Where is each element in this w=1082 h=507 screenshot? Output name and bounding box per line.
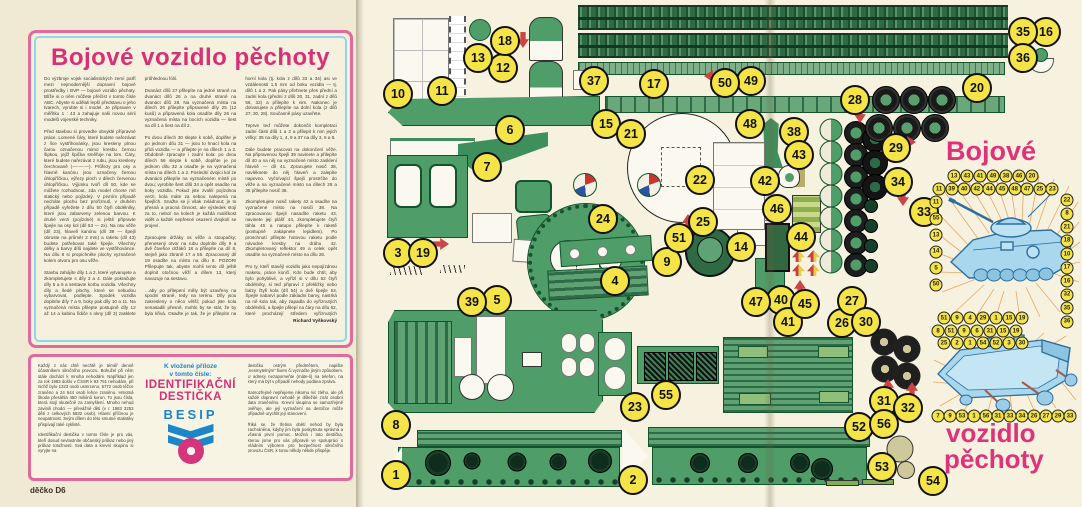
callout-number-35: 35 bbox=[1061, 302, 1074, 315]
callout-number-23: 23 bbox=[1046, 183, 1059, 196]
deck-mark bbox=[522, 352, 542, 367]
road-wheel-part bbox=[820, 207, 843, 230]
chevron-arrow-part bbox=[792, 264, 805, 276]
part-number-50: 50 bbox=[710, 68, 740, 98]
road-wheel-part bbox=[820, 185, 843, 208]
part-number-36: 36 bbox=[1008, 43, 1038, 73]
part-number-10: 10 bbox=[383, 79, 413, 109]
callout-number-2: 2 bbox=[951, 337, 964, 350]
dome-sight-lens bbox=[785, 173, 794, 182]
part-number-7: 7 bbox=[472, 152, 502, 182]
grille-panel-part bbox=[637, 346, 719, 384]
part-number-2: 2 bbox=[618, 465, 648, 495]
part-number-42: 42 bbox=[750, 166, 780, 196]
callout-number-32: 32 bbox=[1061, 288, 1074, 301]
chevron-arrow-part bbox=[807, 250, 820, 262]
road-wheel-part bbox=[921, 114, 949, 142]
part-number-56: 56 bbox=[869, 409, 899, 439]
callout-number-38: 38 bbox=[1000, 170, 1013, 183]
callout-number-5: 5 bbox=[930, 262, 943, 275]
callout-number-42: 42 bbox=[970, 183, 983, 196]
road-wheel-part bbox=[894, 336, 921, 363]
deck-ribs bbox=[394, 321, 452, 404]
part-number-11: 11 bbox=[427, 76, 457, 106]
hatch-template-part bbox=[472, 213, 512, 243]
hull-side-rib-part bbox=[417, 430, 622, 447]
callout-number-20: 20 bbox=[1026, 170, 1039, 183]
deck-oval bbox=[561, 357, 577, 377]
painted-wheel-part bbox=[573, 173, 597, 197]
part-number-14: 14 bbox=[726, 232, 756, 262]
turret-base-inner bbox=[697, 237, 723, 263]
deck-white-box bbox=[454, 337, 472, 377]
part-number-47: 47 bbox=[741, 287, 771, 317]
callout-number-3: 3 bbox=[1003, 337, 1016, 350]
part-number-55: 55 bbox=[651, 380, 681, 410]
road-wheel-part bbox=[690, 453, 710, 473]
part-number-49: 49 bbox=[736, 66, 766, 96]
part-number-21: 21 bbox=[616, 119, 646, 149]
road-wheel-part bbox=[900, 86, 928, 114]
road-wheel-part bbox=[790, 453, 810, 473]
bar-hole bbox=[569, 248, 581, 260]
callout-number-52: 52 bbox=[990, 337, 1003, 350]
part-number-24: 24 bbox=[588, 204, 618, 234]
deck-tab bbox=[819, 391, 849, 403]
callout-number-41: 41 bbox=[974, 170, 987, 183]
callout-number-46: 46 bbox=[1013, 170, 1026, 183]
callout-number-43: 43 bbox=[961, 170, 974, 183]
callout-number-40: 40 bbox=[958, 183, 971, 196]
callout-number-9: 9 bbox=[951, 312, 964, 325]
road-wheel-part bbox=[897, 461, 915, 479]
callout-number-48: 48 bbox=[1008, 183, 1021, 196]
callout-number-18: 18 bbox=[1061, 234, 1074, 247]
callout-number-11: 11 bbox=[930, 196, 943, 209]
road-wheel-part bbox=[588, 449, 612, 473]
part-number-39: 39 bbox=[457, 287, 487, 317]
road-wheel-part bbox=[820, 141, 843, 164]
part-number-23: 23 bbox=[620, 392, 650, 422]
callout-number-45: 45 bbox=[996, 183, 1009, 196]
part-number-4: 4 bbox=[600, 266, 630, 296]
road-wheel-part bbox=[738, 453, 758, 473]
chevron-arrow-part bbox=[807, 264, 820, 276]
road-wheel-part bbox=[820, 119, 843, 142]
callout-number-1: 1 bbox=[964, 337, 977, 350]
callout-number-44: 44 bbox=[983, 183, 996, 196]
part-number-20: 20 bbox=[962, 73, 992, 103]
road-wheel-part bbox=[864, 259, 878, 273]
part-number-43: 43 bbox=[784, 140, 814, 170]
part-number-22: 22 bbox=[685, 165, 715, 195]
part-number-8: 8 bbox=[381, 410, 411, 440]
callout-number-13: 13 bbox=[948, 170, 961, 183]
oval-hole bbox=[604, 366, 626, 390]
callout-number-8: 8 bbox=[1061, 207, 1074, 220]
deck-hole bbox=[459, 374, 485, 400]
road-wheel-part bbox=[820, 163, 843, 186]
callout-number-1: 1 bbox=[990, 312, 1003, 325]
driver-window-panel-part bbox=[387, 155, 468, 238]
part-number-29: 29 bbox=[881, 133, 911, 163]
deck-tab bbox=[818, 346, 849, 358]
road-wheel-part bbox=[864, 239, 878, 253]
road-wheel-part bbox=[894, 363, 921, 390]
hull-side-rib-part bbox=[648, 427, 870, 447]
part-number-48: 48 bbox=[735, 109, 765, 139]
part-number-18: 18 bbox=[490, 26, 520, 56]
road-wheel-part bbox=[811, 458, 833, 480]
callout-number-36: 36 bbox=[1061, 315, 1074, 328]
track-strip-part bbox=[578, 33, 1008, 58]
road-wheel-part bbox=[820, 229, 843, 252]
part-number-51: 51 bbox=[664, 223, 694, 253]
window-part bbox=[429, 164, 457, 208]
part-number-45: 45 bbox=[790, 289, 820, 319]
part-number-46: 46 bbox=[762, 194, 792, 224]
grille-mesh bbox=[668, 352, 694, 381]
bar-hole bbox=[625, 244, 637, 256]
callout-number-21: 21 bbox=[1061, 221, 1074, 234]
callout-number-25: 25 bbox=[938, 337, 951, 350]
deck-hole bbox=[487, 374, 514, 401]
sheet-title-bottom-line2: pěchoty bbox=[944, 446, 1044, 472]
part-number-13: 13 bbox=[463, 43, 493, 73]
road-wheel-part bbox=[928, 86, 956, 114]
part-number-28: 28 bbox=[840, 85, 870, 115]
spring-mark bbox=[440, 265, 465, 273]
callout-number-11: 11 bbox=[933, 183, 946, 196]
track-strip-part bbox=[578, 5, 1008, 30]
grille-mesh bbox=[644, 352, 666, 381]
painted-wheel-part bbox=[637, 173, 661, 197]
callout-number-50: 50 bbox=[930, 278, 943, 291]
page-gap-shadow bbox=[356, 0, 364, 507]
part-number-30: 30 bbox=[851, 307, 881, 337]
deck-oval bbox=[579, 357, 595, 377]
grille-mesh bbox=[696, 352, 717, 381]
hull-floor-part bbox=[388, 96, 600, 126]
road-wheel-part bbox=[872, 86, 900, 114]
sheet-title-top: Bojové bbox=[946, 136, 1036, 167]
model-sheet-page: Bojové vozidlo pěchoty 12345678910111213… bbox=[358, 0, 1082, 507]
dome-box-part bbox=[529, 17, 563, 61]
road-wheel-part bbox=[864, 219, 878, 233]
callout-number-33: 33 bbox=[1064, 410, 1077, 423]
part-number-37: 37 bbox=[579, 66, 609, 96]
axle-strip-part bbox=[826, 480, 859, 486]
callout-number-17: 17 bbox=[1061, 261, 1074, 274]
rear-deck-part bbox=[723, 337, 853, 413]
part-number-17: 17 bbox=[639, 69, 669, 99]
callout-number-25: 25 bbox=[1033, 183, 1046, 196]
callout-number-51: 51 bbox=[938, 312, 951, 325]
road-wheel-part bbox=[464, 453, 481, 470]
part-number-1: 1 bbox=[381, 460, 411, 490]
part-number-19: 19 bbox=[408, 238, 438, 268]
callout-number-54: 54 bbox=[977, 337, 990, 350]
hatch-part bbox=[515, 180, 552, 213]
deck-tab bbox=[738, 346, 768, 358]
callout-number-39: 39 bbox=[945, 183, 958, 196]
part-number-34: 34 bbox=[883, 167, 913, 197]
oval-hole bbox=[604, 337, 626, 361]
round-hatch-part bbox=[469, 19, 491, 41]
callout-number-55: 55 bbox=[930, 212, 943, 225]
road-wheel-part bbox=[864, 199, 878, 213]
callout-number-49: 49 bbox=[987, 170, 1000, 183]
window-part bbox=[394, 164, 422, 208]
callout-number-29: 29 bbox=[977, 312, 990, 325]
deck-oval bbox=[561, 333, 577, 353]
oval-hatch-part bbox=[598, 332, 632, 396]
callout-number-19: 19 bbox=[1016, 312, 1029, 325]
road-wheel-part bbox=[508, 453, 527, 472]
deck-tab bbox=[739, 393, 771, 405]
part-number-6: 6 bbox=[495, 115, 525, 145]
callout-number-13: 13 bbox=[930, 229, 943, 242]
bar-hole bbox=[597, 246, 609, 258]
road-wheel-part bbox=[550, 454, 567, 471]
sheet-title-bottom-line1: vozidlo bbox=[946, 420, 1036, 446]
callout-number-14: 14 bbox=[930, 245, 943, 258]
road-wheel-part bbox=[820, 251, 843, 274]
callout-number-4: 4 bbox=[964, 312, 977, 325]
part-number-44: 44 bbox=[786, 222, 816, 252]
callout-number-15: 15 bbox=[1003, 312, 1016, 325]
callout-number-30: 30 bbox=[1016, 337, 1029, 350]
road-wheel-part bbox=[425, 450, 451, 476]
callout-number-47: 47 bbox=[1021, 183, 1034, 196]
deck-oval bbox=[579, 333, 595, 353]
louvered-bar-part bbox=[547, 265, 648, 300]
part-number-53: 53 bbox=[867, 452, 897, 482]
engine-deck-part bbox=[388, 310, 603, 413]
callout-number-16: 16 bbox=[1061, 275, 1074, 288]
callout-number-10: 10 bbox=[1061, 248, 1074, 261]
callout-number-22: 22 bbox=[1061, 194, 1074, 207]
